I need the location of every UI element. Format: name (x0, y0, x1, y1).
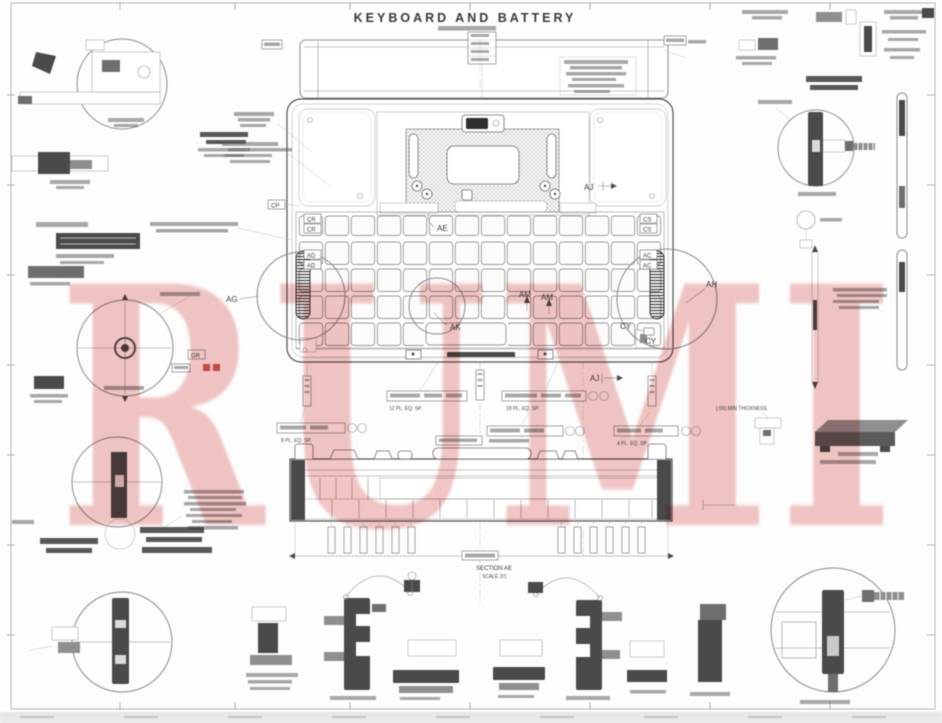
callout-ah: AH (706, 280, 717, 289)
thickness-note-group: (.06) MIN THICKNESS (716, 406, 781, 444)
callout-cy-2: CY (645, 337, 657, 346)
drawing-title-block: KEYBOARD AND BATTERY (354, 11, 577, 31)
right-edge-pill-sections (897, 93, 907, 370)
dimension-rows: 12 PL. EQ. SP. 18 PL. EQ. SP. 8 PL. EQ. … (172, 362, 701, 447)
callout-am-2: AM (541, 293, 553, 302)
left-bold-callouts (12, 519, 212, 553)
right-column-details: (.06) MIN THICKNESS (716, 8, 934, 464)
section-view: SECTION AE SCALE 2/1 (289, 444, 674, 580)
callout-ac-2: AC (643, 264, 652, 270)
callout-ad-1: AD (307, 254, 316, 260)
section-title: SECTION AE (476, 566, 512, 572)
iso-bracket (815, 420, 908, 464)
left-palm-panel (299, 109, 375, 206)
detail-step-part (246, 607, 298, 690)
left-column-details: GR (12, 39, 330, 553)
trackpad-cutout (447, 146, 519, 184)
callout-ak: AK (450, 323, 461, 332)
note-eq12: 12 PL. EQ. SP. (389, 406, 422, 412)
detail-iso-part (690, 500, 735, 696)
engineering-drawing: KEYBOARD AND BATTERY (0, 0, 942, 723)
title-subtext-blur (438, 26, 496, 31)
callout-cp: CP (271, 204, 279, 210)
callout-cs-1: CS (643, 218, 651, 224)
callout-cr-2: CR (307, 228, 316, 234)
callout-aj-top: AJ (584, 183, 593, 192)
callout-cr-1: CR (307, 218, 316, 224)
hinge-bar (447, 352, 515, 357)
detail-circle-top-right (758, 100, 875, 248)
detail-circle-hinge-boss: GR (30, 292, 220, 403)
detail-circle-left-lower (72, 437, 162, 527)
note-eq4: 4 PL. EQ. SP. (617, 441, 647, 447)
callout-ac-1: AC (643, 254, 652, 260)
callout-cy-1: CY (620, 322, 632, 331)
detail-circle-top-left (18, 39, 167, 129)
callout-cs-2: CS (643, 228, 651, 234)
detail-bars-center-left (393, 640, 459, 700)
callout-aj-bottom: AJ (590, 374, 599, 383)
left-notes-block (160, 490, 246, 530)
left-slot (409, 134, 418, 178)
left-hatched-blocks (28, 222, 292, 286)
right-palm-panel (590, 109, 666, 206)
detail-bars-center-right (493, 640, 545, 698)
detail-circle-bottom-left (30, 592, 172, 692)
top-strip-view (262, 32, 706, 98)
note-eq8: 8 PL. EQ. SP. (281, 438, 311, 444)
callout-ag: AG (226, 295, 238, 304)
top-right-annotation-cluster (736, 8, 934, 90)
detail-left-bar-section (12, 132, 250, 189)
key-grid (296, 212, 664, 349)
callout-ae: AE (437, 224, 448, 233)
callout-gr: GR (191, 354, 201, 360)
detail-bars-right (627, 641, 667, 694)
section-dim-tags (328, 521, 645, 553)
right-slot (547, 134, 556, 178)
note-eq18: 18 PL. EQ. SP. (506, 406, 539, 412)
detail-section-f-right (528, 578, 622, 700)
callout-am-1: AM (519, 290, 531, 299)
detail-circle-bottom-right (771, 568, 904, 704)
blueprint-sheet: KEYBOARD AND BATTERY (0, 0, 942, 723)
drawing-title: KEYBOARD AND BATTERY (354, 11, 577, 25)
right-mid-section (812, 245, 887, 389)
thickness-note: (.06) MIN THICKNESS (716, 406, 767, 412)
section-scale: SCALE 2/1 (482, 574, 507, 580)
callout-ad-2: AD (307, 264, 316, 270)
